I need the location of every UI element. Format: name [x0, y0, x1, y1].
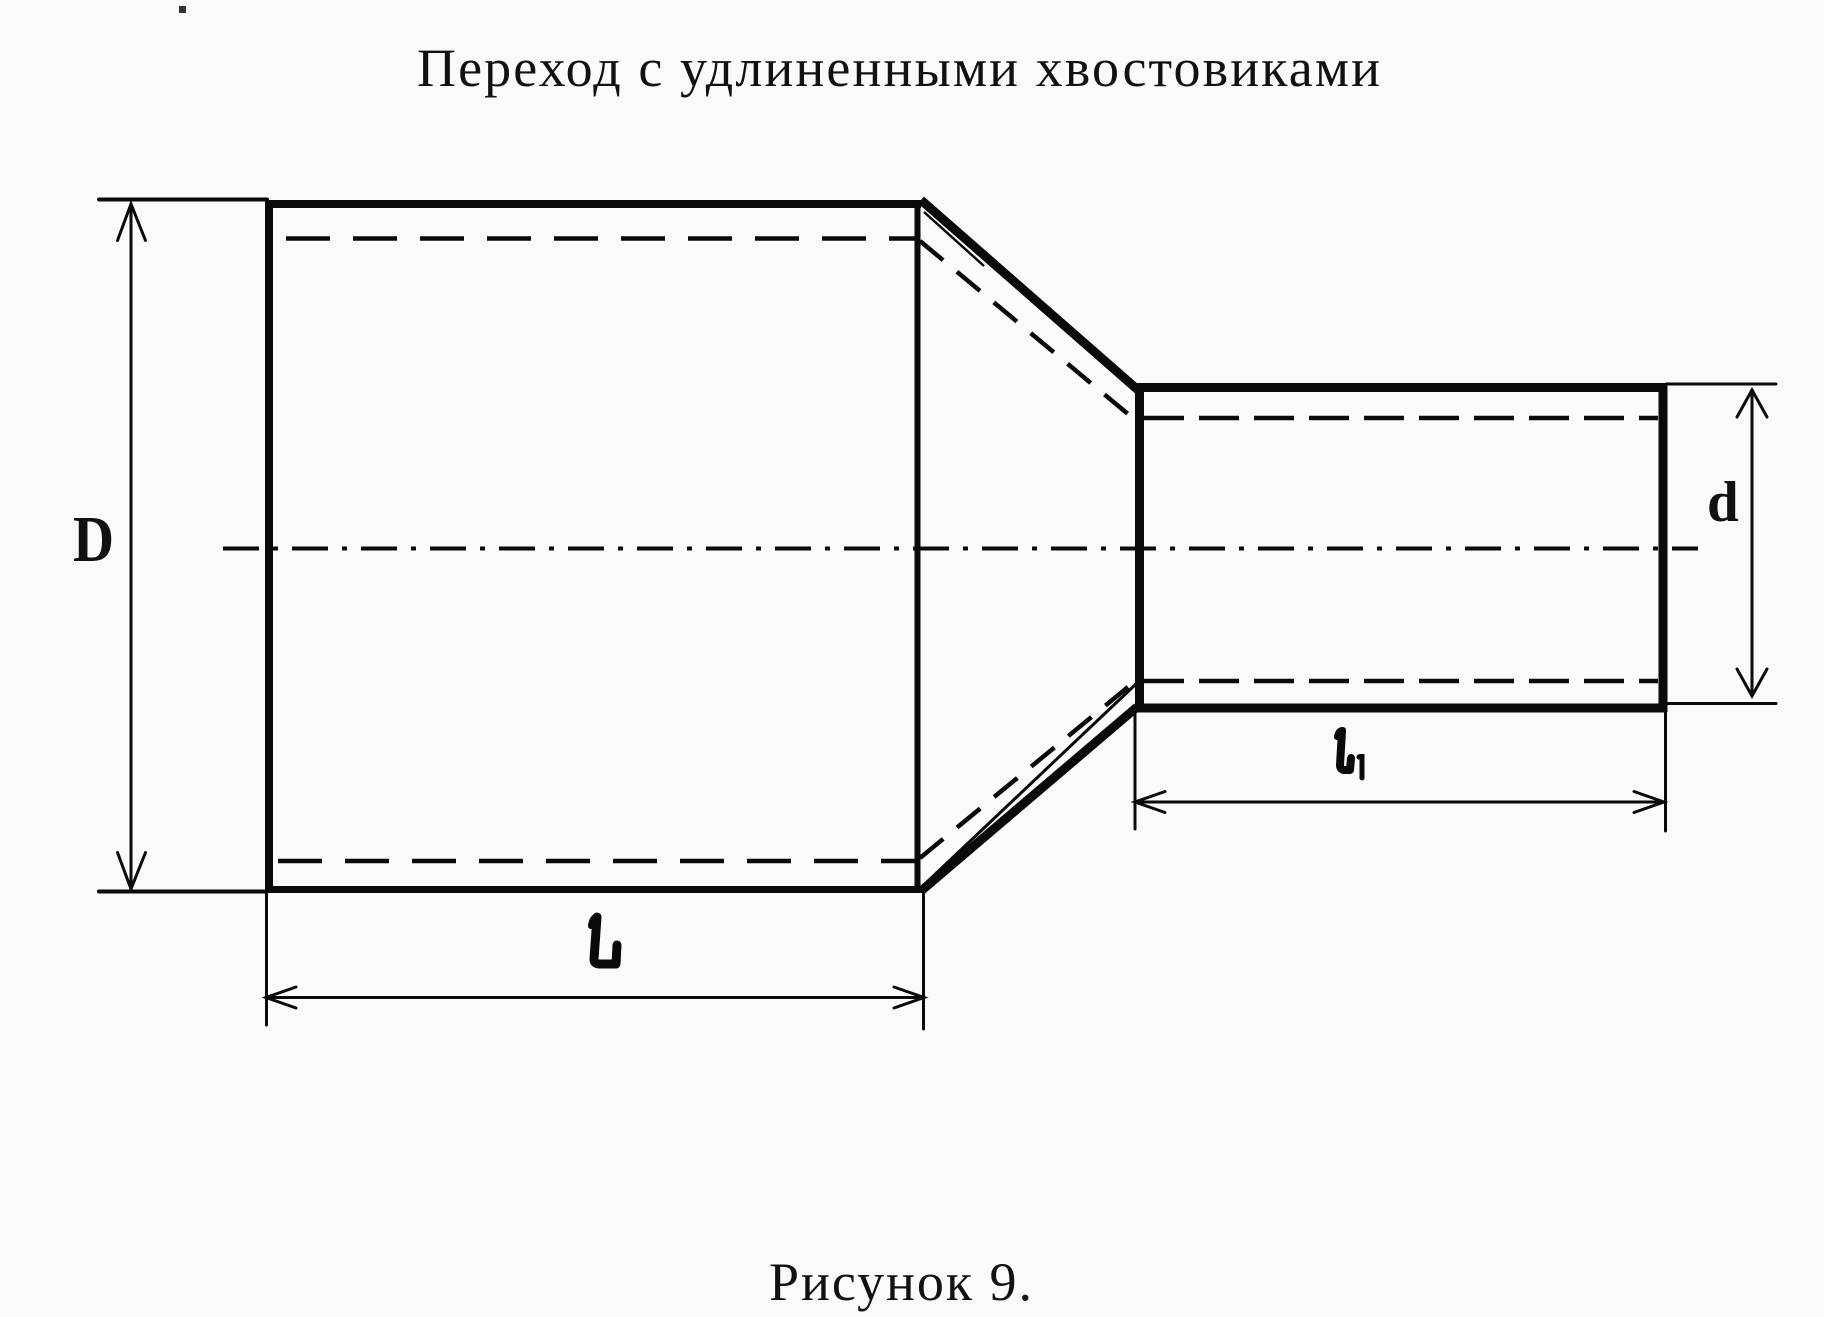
svg-text:Рисунок 9.: Рисунок 9.: [769, 1252, 1032, 1312]
svg-text:D: D: [73, 503, 114, 576]
svg-text:Переход с удлиненными хвостови: Переход с удлиненными хвостовиками: [417, 38, 1380, 98]
svg-text:d: d: [1707, 471, 1739, 534]
